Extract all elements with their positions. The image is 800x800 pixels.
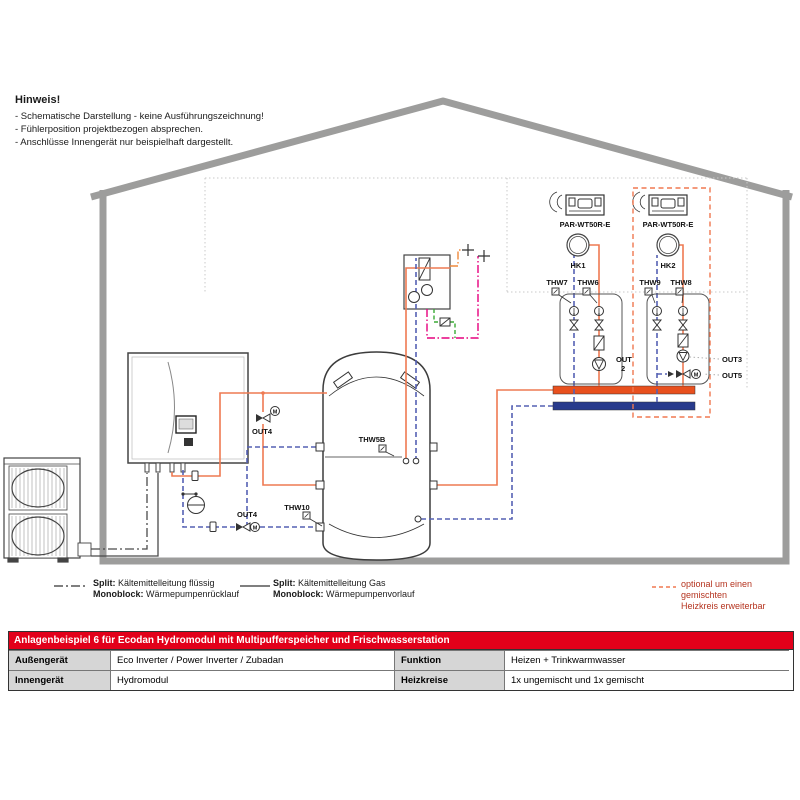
sensor-icon xyxy=(583,288,597,303)
table-value-innengeraet: Hydromodul xyxy=(110,670,394,690)
svg-text:M: M xyxy=(273,409,278,415)
thw6-label: THW6 xyxy=(577,278,598,287)
sensor-icon xyxy=(645,288,655,303)
schematic-page: { "notice": { "title": "Hinweis!", "line… xyxy=(0,0,800,800)
table-value-aussengeraet: Eco Inverter / Power Inverter / Zubadan xyxy=(110,650,394,670)
tap-icon xyxy=(462,244,474,256)
hk1-circle xyxy=(567,234,589,256)
out3-leader xyxy=(690,357,719,359)
table-label-aussengeraet: Außengerät xyxy=(9,650,110,670)
table-title: Anlagenbeispiel 6 für Ecodan Hydromodul … xyxy=(9,632,793,650)
sensor-icon xyxy=(303,512,322,526)
hk2-components: M xyxy=(653,307,701,379)
table-label-innengeraet: Innengerät xyxy=(9,670,110,690)
hk2-circle xyxy=(657,234,679,256)
circulation-line xyxy=(434,309,440,322)
table-label-funktion: Funktion xyxy=(394,650,504,670)
notice-block: Hinweis! - Schematische Darstellung - ke… xyxy=(15,94,345,149)
notice-line: - Schematische Darstellung - keine Ausfü… xyxy=(15,110,345,123)
pump-icon xyxy=(409,292,420,303)
table-value-funktion: Heizen + Trinkwarmwasser xyxy=(504,650,789,670)
spec-table: Anlagenbeispiel 6 für Ecodan Hydromodul … xyxy=(8,631,794,691)
hk1-label: HK1 xyxy=(570,261,585,270)
tank-port xyxy=(413,458,419,464)
wireless-icon xyxy=(557,195,562,209)
buffer-tank xyxy=(323,352,430,560)
legend-item-liquid: Split: Kältemittelleitung flüssig Monobl… xyxy=(93,578,239,600)
notice-title: Hinweis! xyxy=(15,94,345,106)
notice-line: - Fühlerposition projektbezogen absprech… xyxy=(15,123,345,136)
wireless-icon xyxy=(640,195,645,209)
expansion-vessel-icon xyxy=(181,492,204,513)
controller-screen xyxy=(661,199,675,208)
svg-text:M: M xyxy=(694,372,699,378)
thw7-label: THW7 xyxy=(546,278,567,287)
svg-text:2: 2 xyxy=(621,364,625,373)
pump-icon xyxy=(422,285,433,296)
fitting-icon xyxy=(192,471,198,481)
thw5b-label: THW5B xyxy=(359,435,386,444)
sensor-icon xyxy=(552,288,571,303)
out4-return-label: OUT4 xyxy=(237,510,258,519)
notice-line: - Anschlüsse Innengerät nur beispielhaft… xyxy=(15,136,345,149)
return-manifold xyxy=(553,402,695,410)
thw10-label: THW10 xyxy=(284,503,309,512)
sensor-icon xyxy=(676,288,683,303)
out4-valve-flow: M xyxy=(256,407,280,423)
thw8-label: THW8 xyxy=(670,278,691,287)
out4-valve-return: M xyxy=(236,523,260,532)
hk2-label: HK2 xyxy=(660,261,675,270)
tap-icon xyxy=(478,250,490,262)
out3-label: OUT3 xyxy=(722,355,742,364)
legend-item-gas: Split: Kältemittelleitung Gas Monoblock:… xyxy=(273,578,415,600)
controller-screen xyxy=(578,199,592,208)
controller-model-label: PAR-WT50R-E xyxy=(643,220,694,229)
hydromodule xyxy=(128,353,248,472)
controller-model-label: PAR-WT50R-E xyxy=(560,220,611,229)
svg-text:M: M xyxy=(253,525,258,531)
table-label-heizkreise: Heizkreise xyxy=(394,670,504,690)
hk1-circuit-box xyxy=(560,294,622,384)
out2-label: OUT xyxy=(616,355,632,364)
cold-water-line xyxy=(450,250,462,266)
legend-optional-note: optional um einen gemischten Heizkreis e… xyxy=(681,579,800,612)
control-button xyxy=(184,438,193,446)
tank-port xyxy=(403,458,409,464)
fitting-icon xyxy=(210,522,216,532)
outdoor-unit xyxy=(4,458,91,562)
table-value-heizkreise: 1x ungemischt und 1x gemischt xyxy=(504,670,789,690)
out5-leader xyxy=(703,374,719,375)
hk1-components xyxy=(570,307,606,371)
thw9-label: THW9 xyxy=(639,278,660,287)
house-outline xyxy=(91,101,792,561)
tank-port xyxy=(415,516,421,522)
out4-flow-label: OUT4 xyxy=(252,427,273,436)
line-liquid-return xyxy=(91,473,147,549)
mixing-valve-icon: M xyxy=(676,370,701,379)
out5-label: OUT5 xyxy=(722,371,742,380)
